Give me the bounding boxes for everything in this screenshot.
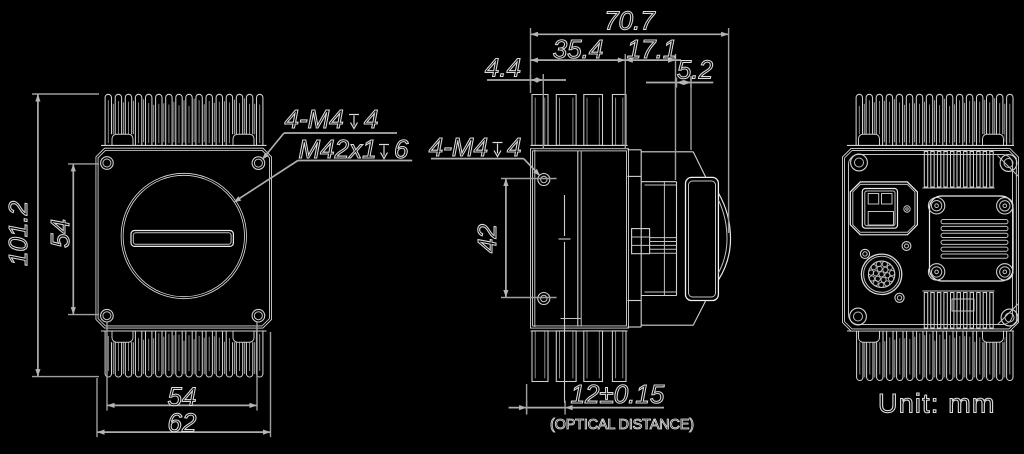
svg-text:70.7: 70.7 bbox=[604, 6, 656, 36]
svg-text:42: 42 bbox=[472, 224, 502, 253]
svg-text:17.1: 17.1 bbox=[627, 34, 678, 64]
svg-text:4: 4 bbox=[507, 132, 521, 162]
svg-text:4.4: 4.4 bbox=[485, 53, 521, 83]
svg-text:62: 62 bbox=[168, 408, 197, 438]
svg-text:5.2: 5.2 bbox=[677, 55, 714, 85]
svg-text:12±0.15: 12±0.15 bbox=[571, 379, 665, 409]
svg-text:4-M4: 4-M4 bbox=[285, 104, 344, 134]
svg-text:35.4: 35.4 bbox=[553, 34, 604, 64]
svg-text:(OPTICAL DISTANCE): (OPTICAL DISTANCE) bbox=[550, 417, 694, 433]
svg-text:101.2: 101.2 bbox=[3, 200, 33, 266]
svg-text:Unit: mm: Unit: mm bbox=[878, 389, 996, 419]
svg-text:M42x1: M42x1 bbox=[299, 134, 377, 164]
svg-text:54: 54 bbox=[45, 219, 75, 248]
svg-text:6: 6 bbox=[394, 134, 409, 164]
svg-text:4-M4: 4-M4 bbox=[429, 132, 488, 162]
svg-text:4: 4 bbox=[364, 104, 378, 134]
